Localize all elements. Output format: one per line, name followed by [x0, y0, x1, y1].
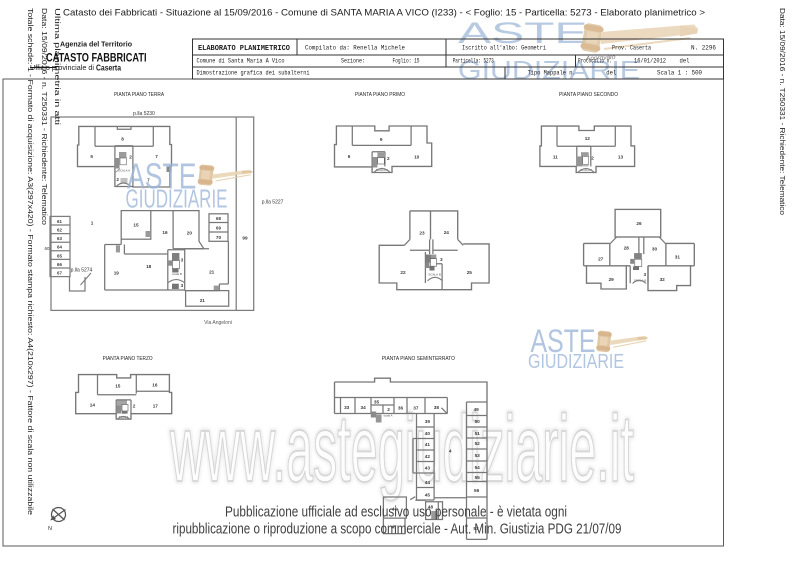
- svg-text:60: 60: [44, 246, 50, 251]
- svg-text:25: 25: [467, 270, 473, 275]
- svg-text:2: 2: [591, 156, 594, 161]
- svg-text:19: 19: [114, 271, 120, 276]
- svg-text:Foglio: 15: Foglio: 15: [393, 58, 420, 65]
- svg-text:1: 1: [91, 220, 94, 225]
- svg-text:56: 56: [474, 488, 480, 493]
- svg-text:16: 16: [162, 230, 168, 235]
- svg-text:68: 68: [216, 216, 221, 221]
- svg-text:2: 2: [387, 156, 390, 161]
- svg-text:99: 99: [242, 236, 248, 241]
- svg-text:31: 31: [675, 254, 681, 259]
- svg-text:PIANTA PIANO SECONDO: PIANTA PIANO SECONDO: [559, 92, 618, 98]
- svg-text:2: 2: [133, 404, 136, 409]
- svg-text:52: 52: [475, 441, 481, 446]
- svg-text:Via Angeloni: Via Angeloni: [204, 320, 232, 326]
- svg-text:12: 12: [585, 136, 591, 141]
- svg-text:50: 50: [475, 419, 481, 424]
- svg-text:10: 10: [414, 154, 420, 159]
- svg-text:p.lla 5227: p.lla 5227: [262, 200, 284, 206]
- svg-text:36: 36: [398, 406, 404, 411]
- svg-text:69: 69: [216, 225, 221, 230]
- svg-text:Agenzia del Territorio: Agenzia del Territorio: [60, 42, 132, 49]
- svg-text:Iscritto all'albo: Geometri: Iscritto all'albo: Geometri: [462, 45, 546, 52]
- svg-text:2: 2: [387, 407, 390, 412]
- svg-text:p.lla 5230: p.lla 5230: [133, 111, 155, 117]
- svg-text:Particella: 5273: Particella: 5273: [453, 58, 494, 65]
- svg-text:3: 3: [181, 258, 184, 263]
- svg-text:32: 32: [660, 277, 666, 282]
- svg-text:43: 43: [425, 466, 431, 471]
- svg-text:PIANTA PIANO TERZO: PIANTA PIANO TERZO: [103, 356, 153, 362]
- svg-text:23: 23: [419, 231, 425, 236]
- svg-text:18: 18: [146, 264, 152, 269]
- svg-text:67: 67: [57, 271, 62, 276]
- svg-text:5: 5: [90, 154, 93, 159]
- svg-text:del: del: [680, 58, 690, 65]
- svg-text:70: 70: [216, 235, 222, 240]
- svg-text:Scala 1 : 500: Scala 1 : 500: [657, 70, 702, 77]
- svg-text:24: 24: [444, 230, 450, 235]
- svg-text:scala A: scala A: [383, 414, 392, 418]
- svg-text:44: 44: [425, 480, 431, 485]
- svg-text:SCALA B: SCALA B: [428, 272, 441, 276]
- svg-text:4: 4: [449, 448, 452, 453]
- svg-text:16: 16: [152, 382, 158, 387]
- svg-text:p.lla 5274: p.lla 5274: [71, 268, 93, 274]
- svg-text:3: 3: [643, 272, 646, 277]
- svg-text:6: 6: [348, 154, 351, 159]
- svg-text:22: 22: [400, 270, 406, 275]
- svg-text:Sezione:: Sezione:: [341, 58, 365, 65]
- svg-text:66: 66: [57, 262, 62, 267]
- svg-text:20: 20: [187, 230, 193, 235]
- svg-text:64: 64: [57, 245, 62, 250]
- svg-text:Ufficio provinciale di: Ufficio provinciale di: [30, 65, 94, 72]
- svg-text:Data: 15/09/2016 - n. T250331: Data: 15/09/2016 - n. T250331 - Richiede…: [778, 8, 787, 215]
- svg-text:N. 2296: N. 2296: [691, 45, 716, 52]
- svg-text:GIUDIZIARIE: GIUDIZIARIE: [126, 186, 228, 214]
- svg-text:45: 45: [425, 492, 431, 497]
- svg-text:39: 39: [425, 419, 431, 424]
- svg-text:53: 53: [475, 453, 481, 458]
- svg-text:del: del: [606, 70, 616, 77]
- svg-text:42: 42: [425, 454, 431, 459]
- svg-text:37: 37: [413, 406, 419, 411]
- svg-text:29: 29: [609, 277, 615, 282]
- svg-text:17: 17: [153, 404, 159, 409]
- svg-text:Comune di Santa Maria A Vico: Comune di Santa Maria A Vico: [197, 58, 285, 65]
- svg-text:3: 3: [440, 257, 443, 262]
- svg-text:61: 61: [57, 219, 62, 224]
- svg-text:34: 34: [360, 405, 366, 410]
- svg-text:scala B: scala B: [172, 272, 182, 276]
- svg-text:3: 3: [181, 283, 184, 288]
- svg-text:51: 51: [475, 431, 481, 436]
- svg-text:ripubblicazione o riproduzione: ripubblicazione o riproduzione a scopo c…: [173, 522, 622, 538]
- svg-text:26: 26: [636, 221, 642, 226]
- svg-text:Caserta: Caserta: [96, 64, 121, 73]
- svg-text:49: 49: [474, 407, 480, 412]
- svg-text:21: 21: [200, 298, 206, 303]
- svg-text:55: 55: [475, 475, 481, 480]
- svg-text:Dimostrazione grafica dei suba: Dimostrazione grafica dei subalterni: [197, 70, 310, 77]
- svg-text:8: 8: [121, 137, 124, 142]
- svg-text:11: 11: [553, 155, 558, 160]
- svg-text:62: 62: [57, 228, 62, 233]
- svg-text:15: 15: [133, 223, 139, 228]
- svg-text:14: 14: [90, 403, 96, 408]
- svg-text:28: 28: [624, 246, 630, 251]
- svg-text:65: 65: [57, 253, 62, 258]
- svg-text:15: 15: [115, 384, 121, 389]
- svg-text:Tipo Mappale n.: Tipo Mappale n.: [528, 70, 576, 77]
- svg-text:30: 30: [652, 246, 658, 251]
- svg-text:Catasto dei Fabbricati - Situa: Catasto dei Fabbricati - Situazione al 1…: [63, 8, 705, 18]
- svg-text:Compilato da: Renella Michele: Compilato da: Renella Michele: [305, 45, 405, 52]
- svg-text:ELABORATO PLANIMETRICO: ELABORATO PLANIMETRICO: [198, 45, 290, 53]
- svg-text:Totale schede: 1 - Formato di: Totale schede: 1 - Formato di acquisizio…: [26, 8, 35, 515]
- svg-text:13: 13: [618, 155, 624, 160]
- svg-text:2: 2: [116, 177, 119, 182]
- svg-text:CATASTO FABBRICATI: CATASTO FABBRICATI: [46, 51, 147, 65]
- svg-text:9: 9: [380, 137, 383, 142]
- svg-text:PIANTA PIANO PRIMO: PIANTA PIANO PRIMO: [355, 92, 405, 98]
- svg-text:N: N: [48, 526, 52, 532]
- svg-text:GIUDIZIARIE: GIUDIZIARIE: [528, 350, 624, 373]
- svg-text:54: 54: [475, 465, 481, 470]
- svg-text:63: 63: [57, 236, 62, 241]
- svg-text:33: 33: [344, 405, 350, 410]
- svg-text:PIANTA PIANO SEMINTERRATO: PIANTA PIANO SEMINTERRATO: [382, 356, 455, 362]
- svg-text:41: 41: [425, 442, 431, 447]
- svg-text:Prov. Caserta: Prov. Caserta: [612, 45, 651, 52]
- svg-text:27: 27: [598, 256, 604, 261]
- svg-text:40: 40: [425, 431, 431, 436]
- svg-text:16/01/2012: 16/01/2012: [634, 58, 666, 65]
- svg-text:www.astegiudiziarie.it: www.astegiudiziarie.it: [169, 396, 634, 502]
- svg-text:21: 21: [209, 269, 215, 274]
- svg-text:PIANTA PIANO TERRA: PIANTA PIANO TERRA: [114, 92, 164, 98]
- svg-text:35: 35: [374, 400, 380, 405]
- svg-text:Pubblicazione ufficiale ad esc: Pubblicazione ufficiale ad esclusivo uso…: [225, 505, 567, 521]
- svg-text:38: 38: [434, 405, 440, 410]
- svg-text:Data: 15/09/2016 - n. T250331: Data: 15/09/2016 - n. T250331 - Richiede…: [40, 8, 49, 225]
